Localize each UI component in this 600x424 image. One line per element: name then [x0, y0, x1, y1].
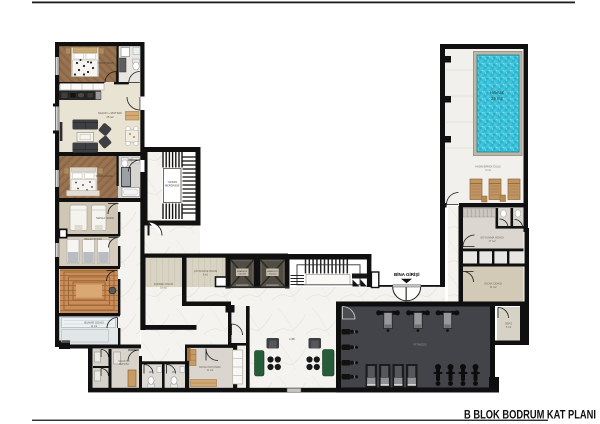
svg-text:25 m2: 25 m2 [106, 115, 114, 119]
svg-text:100x120: 100x120 [238, 274, 247, 276]
svg-text:RELAX ROOM: RELAX ROOM [84, 237, 101, 241]
svg-text:WC: WC [149, 371, 153, 374]
svg-text:ÇAY/KAHVE ODASI: ÇAY/KAHVE ODASI [194, 269, 218, 273]
svg-text:17 m2: 17 m2 [489, 240, 497, 243]
svg-text:14 m2: 14 m2 [490, 286, 498, 289]
svg-text:25 m2: 25 m2 [491, 96, 503, 101]
svg-text:YATAK ODASI: YATAK ODASI [96, 174, 113, 178]
svg-text:16 m2: 16 m2 [160, 287, 167, 290]
svg-text:DEPOSU: DEPOSU [119, 363, 129, 366]
svg-text:8 m2: 8 m2 [203, 274, 209, 277]
svg-text:5 m2: 5 m2 [506, 326, 512, 329]
svg-text:ASANSÖR: ASANSÖR [237, 270, 248, 273]
svg-text:SALON + MUTFAK: SALON + MUTFAK [98, 111, 122, 115]
svg-text:6 m2: 6 m2 [485, 169, 491, 172]
svg-text:HAVUZ: HAVUZ [490, 90, 504, 95]
svg-text:ASANSÖR: ASANSÖR [267, 270, 278, 273]
svg-text:BİNA GİRİŞİ: BİNA GİRİŞİ [394, 271, 420, 278]
svg-text:ŞOFBEN ODASI: ŞOFBEN ODASI [154, 282, 174, 286]
svg-text:11 m2: 11 m2 [91, 325, 98, 328]
svg-text:B BLOK BODRUM KAT PLANI: B BLOK BODRUM KAT PLANI [464, 407, 596, 421]
svg-text:100x120: 100x120 [269, 274, 278, 276]
svg-text:WC: WC [172, 371, 176, 374]
svg-text:SOYUNMA ODASI: SOYUNMA ODASI [480, 236, 504, 240]
svg-text:YATAK ODASI: YATAK ODASI [98, 61, 115, 65]
svg-text:SICAK ODASI: SICAK ODASI [484, 282, 502, 286]
svg-text:MASAJ ODASI: MASAJ ODASI [96, 216, 114, 220]
svg-text:11 m2: 11 m2 [207, 369, 214, 372]
svg-text:FITNESS: FITNESS [414, 343, 427, 347]
svg-text:YANGIN: YANGIN [167, 180, 177, 184]
svg-text:BUHAR ODASI: BUHAR ODASI [84, 321, 103, 325]
svg-text:DEPO: DEPO [505, 322, 512, 326]
